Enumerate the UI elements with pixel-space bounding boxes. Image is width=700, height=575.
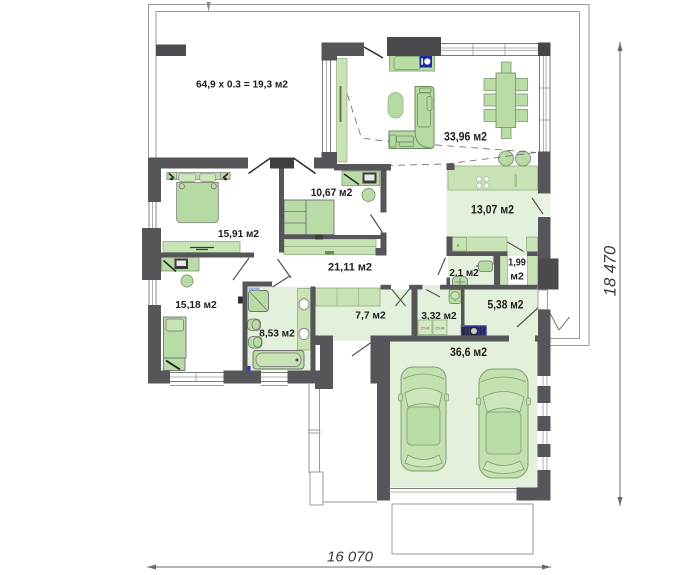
svg-text:21,11 м2: 21,11 м2 (328, 262, 372, 274)
svg-text:1,99: 1,99 (508, 258, 526, 269)
svg-text:м2: м2 (510, 272, 524, 283)
svg-text:СУ-М: СУ-М (436, 327, 445, 331)
svg-text:5,38 м2: 5,38 м2 (488, 298, 524, 312)
svg-text:16 070: 16 070 (327, 549, 374, 566)
svg-text:36,6 м2: 36,6 м2 (450, 345, 487, 359)
svg-text:64,9 x 0.3 = 19,3 м2: 64,9 x 0.3 = 19,3 м2 (196, 79, 288, 91)
svg-text:8,53 м2: 8,53 м2 (259, 329, 295, 340)
svg-text:СТ-М: СТ-М (421, 327, 430, 331)
svg-text:33,96 м2: 33,96 м2 (444, 132, 487, 144)
svg-text:15,18 м2: 15,18 м2 (175, 299, 217, 311)
svg-text:7,7 м2: 7,7 м2 (355, 311, 386, 322)
svg-text:a: a (457, 243, 460, 249)
svg-text:15,91 м2: 15,91 м2 (218, 228, 259, 240)
svg-text:13,07 м2: 13,07 м2 (471, 205, 514, 217)
svg-text:18 470: 18 470 (602, 245, 620, 296)
svg-text:10,67 м2: 10,67 м2 (311, 187, 353, 199)
